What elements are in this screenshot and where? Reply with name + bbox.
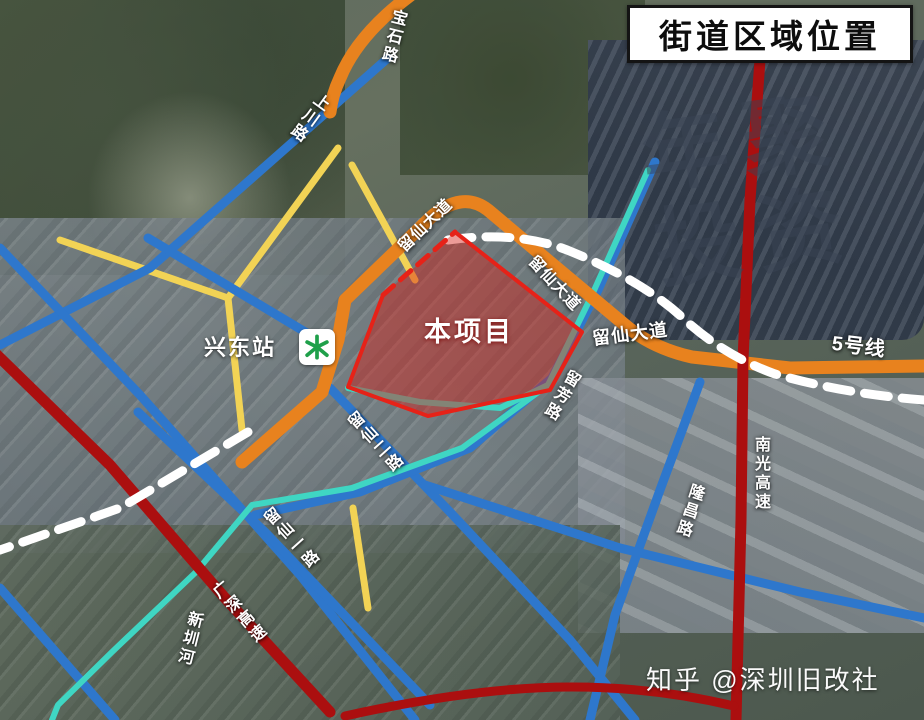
project-area-label: 本项目 [424,310,514,349]
shenzhen-metro-station-icon [299,329,335,365]
map-title-box: 街道区域位置 [627,5,913,63]
road-southeast-cross [425,485,924,618]
watermark: 年聚 投资 [636,83,864,299]
road-southwest-corner [0,588,115,720]
road-label-nanguang-expwy: 南光高速 [748,436,772,512]
road-west-diagonal [0,248,415,720]
road-yellow-4 [353,508,368,608]
metro-logo-glyph [303,333,331,361]
station-label-xingdong: 兴东站 [204,330,276,362]
map-canvas[interactable]: 宝石路 上川路 留仙大道 留仙大道 留仙大道 5号线 南光高速 隆昌路 留芳路 … [0,0,924,720]
credit-watermark: 知乎 @深圳旧改社 [646,660,880,697]
metro-line5-dashed-west [0,432,248,550]
map-title: 街道区域位置 [659,10,881,58]
